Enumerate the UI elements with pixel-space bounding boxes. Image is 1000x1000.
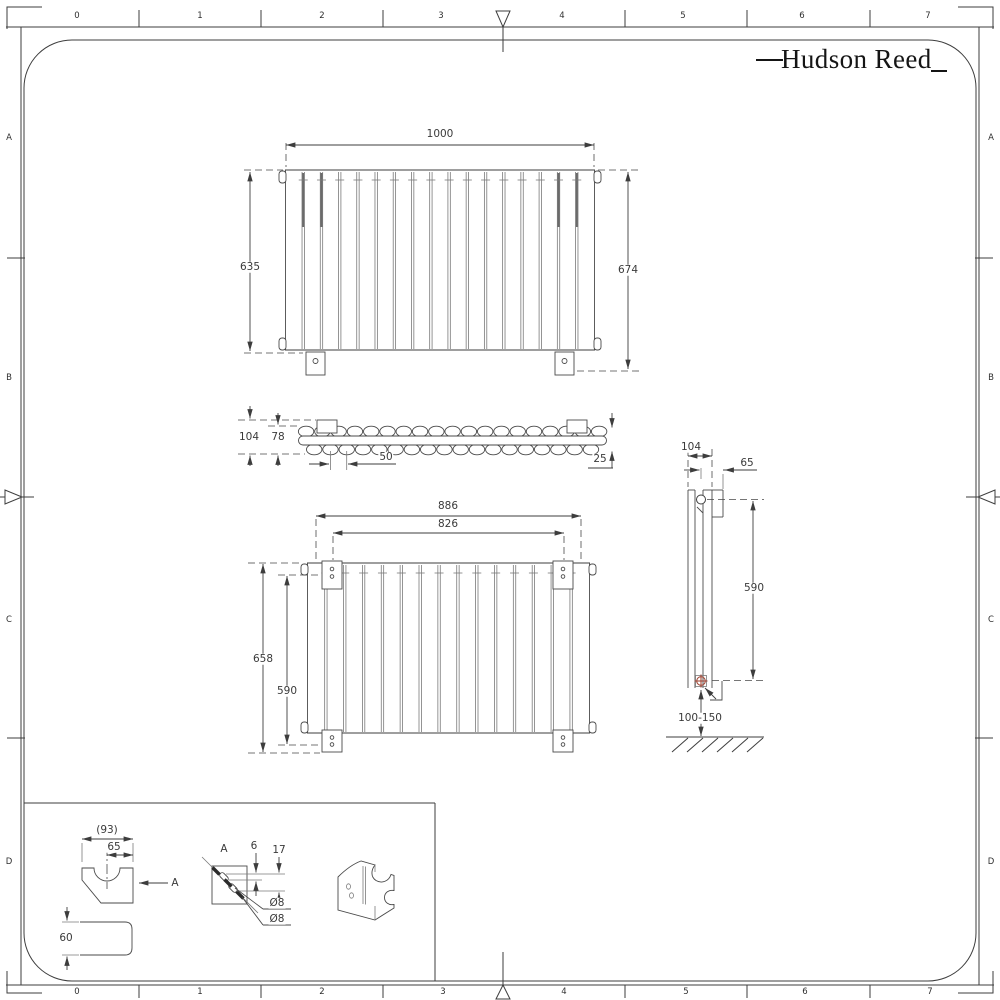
ruler-right-c: C [988, 616, 994, 625]
view-arrow-label-a: A [170, 878, 179, 889]
registration-arrow-top [496, 11, 510, 52]
wall-bracket-plate [553, 730, 573, 752]
dim-label-height-635: 635 [239, 262, 261, 273]
radiator-panels-886 [321, 565, 575, 732]
registration-arrow-bottom [496, 952, 510, 999]
dim-label-slot-6: 6 [250, 841, 259, 852]
ruler-top-6: 6 [799, 12, 804, 21]
wall-bracket-strips [302, 173, 578, 227]
dim-label-span-826: 826 [437, 519, 459, 530]
brand-logo: Hudson Reed [756, 45, 947, 73]
sheet-frame [0, 7, 1000, 999]
dim-label-bracket-60: 60 [58, 933, 73, 944]
ruler-top-1: 1 [197, 12, 202, 21]
dim-label-core-78: 78 [270, 432, 285, 443]
front-view-886 [248, 516, 596, 753]
drawing-sheet: Hudson Reed 0 1 2 3 4 5 6 7 0 1 2 3 4 5 … [0, 0, 1000, 1000]
logo-text: Hudson Reed [781, 45, 932, 73]
side-connector [589, 722, 596, 733]
collector-band [299, 436, 607, 445]
ruler-top-7: 7 [925, 12, 930, 21]
ruler-top-5: 5 [680, 12, 685, 21]
ruler-top-0: 0 [74, 12, 79, 21]
technical-drawing [0, 0, 1000, 1000]
logo-underline-icon [931, 70, 947, 72]
dim-label-hole-dia-1: Ø8 [269, 898, 286, 909]
dim-label-height-658: 658 [252, 654, 274, 665]
dim-label-hole-dia-2: Ø8 [269, 914, 286, 925]
front-view-1000 [244, 143, 641, 375]
registration-arrow-right [966, 490, 1000, 504]
dim-label-pitch-50: 50 [378, 452, 393, 463]
dim-label-side-590: 590 [743, 583, 765, 594]
ruler-left-d: D [6, 858, 13, 867]
ruler-bottom-6: 6 [802, 988, 807, 997]
bracket-tab [567, 420, 587, 433]
ruler-bottom-2: 2 [319, 988, 324, 997]
dim-label-bracket-590: 590 [276, 686, 298, 697]
ruler-right-d: D [988, 858, 995, 867]
side-connector [279, 171, 286, 183]
ruler-top-3: 3 [438, 12, 443, 21]
ruler-bottom-1: 1 [197, 988, 202, 997]
dim-label-side-65: 65 [739, 458, 754, 469]
bracket-side-profile [82, 839, 168, 903]
ruler-ticks [7, 10, 993, 998]
bracket-tab [317, 420, 337, 433]
side-connector [301, 722, 308, 733]
ruler-right-a: A [988, 134, 994, 143]
bracket-hook-hole [697, 495, 706, 504]
dim-label-offset-25: 25 [592, 454, 607, 465]
ruler-left-b: B [6, 374, 12, 383]
ruler-right-b: B [988, 374, 994, 383]
registration-arrow-left [0, 490, 34, 504]
dim-label-width-886: 886 [437, 501, 459, 512]
wall-bracket-plate [322, 730, 342, 752]
side-view [666, 449, 764, 752]
dim-label-bracket-93: (93) [95, 825, 119, 836]
dim-label-slot-17: 17 [271, 845, 286, 856]
side-connector [594, 171, 601, 183]
radiator-panels-1000 [299, 172, 582, 349]
ruler-top-4: 4 [559, 12, 564, 21]
logo-dash-icon [756, 59, 783, 61]
ruler-bottom-5: 5 [683, 988, 688, 997]
ruler-bottom-3: 3 [440, 988, 445, 997]
dim-label-width-1000: 1000 [426, 129, 455, 140]
dim-label-side-104: 104 [680, 442, 702, 453]
ruler-bottom-0: 0 [74, 988, 79, 997]
side-connector [589, 564, 596, 575]
ruler-bottom-4: 4 [561, 988, 566, 997]
bracket-isometric [338, 861, 394, 920]
dim-label-floor-clearance: 100-150 [677, 713, 723, 724]
floor-hatching [672, 738, 763, 752]
dim-label-depth-104: 104 [238, 432, 260, 443]
side-connector [594, 338, 601, 350]
dim-label-bracket-65: 65 [106, 842, 121, 853]
ruler-bottom-7: 7 [927, 988, 932, 997]
ruler-top-2: 2 [319, 12, 324, 21]
side-connector [279, 338, 286, 350]
dim-label-height-674: 674 [617, 265, 639, 276]
top-view [238, 406, 613, 470]
ruler-left-c: C [6, 616, 12, 625]
bracket-detail-box [24, 803, 435, 981]
side-connector [301, 564, 308, 575]
ruler-left-a: A [6, 134, 12, 143]
section-label-a: A [219, 844, 228, 855]
